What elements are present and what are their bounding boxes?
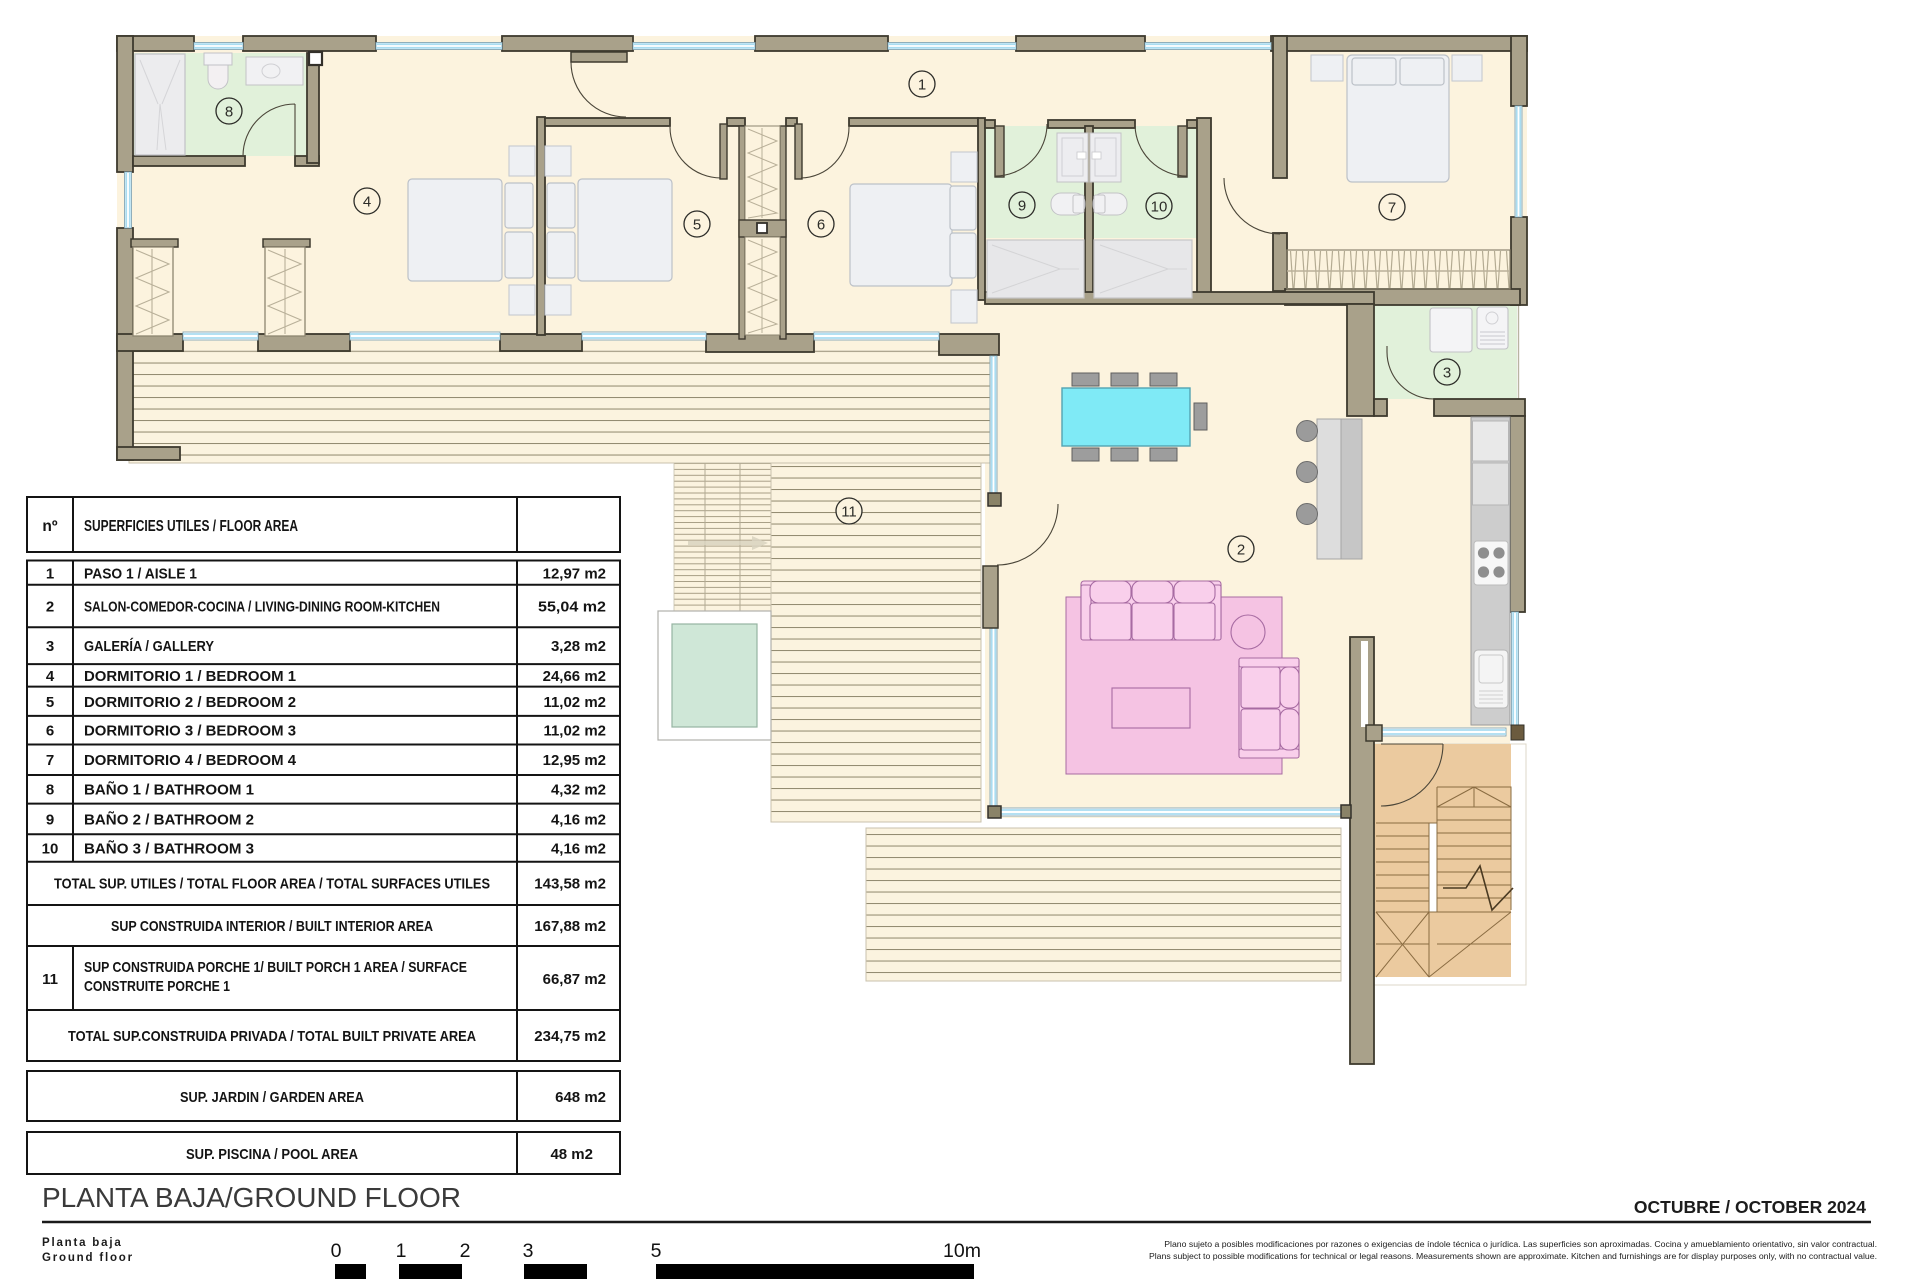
svg-text:4: 4: [363, 194, 371, 211]
svg-text:24,66 m2: 24,66 m2: [543, 668, 606, 685]
svg-text:SUP. PISCINA / POOL AREA: SUP. PISCINA / POOL AREA: [186, 1146, 358, 1163]
svg-text:11: 11: [42, 971, 58, 988]
svg-text:BAÑO 3 / BATHROOM 3: BAÑO 3 / BATHROOM 3: [84, 840, 254, 858]
svg-text:3,28 m2: 3,28 m2: [551, 638, 606, 655]
svg-text:BAÑO 1 / BATHROOM 1: BAÑO 1 / BATHROOM 1: [84, 781, 254, 799]
svg-text:SUP CONSTRUIDA INTERIOR / BUIL: SUP CONSTRUIDA INTERIOR / BUILT INTERIOR…: [111, 918, 433, 935]
svg-text:66,87 m2: 66,87 m2: [543, 971, 606, 988]
svg-text:4,16 m2: 4,16 m2: [551, 841, 606, 858]
svg-text:BAÑO 2 / BATHROOM 2: BAÑO 2 / BATHROOM 2: [84, 811, 254, 829]
svg-text:Plano sujeto a posibles modifi: Plano sujeto a posibles modificaciones p…: [1164, 1239, 1877, 1249]
svg-text:8: 8: [46, 782, 54, 799]
svg-text:7: 7: [46, 752, 54, 769]
svg-text:11: 11: [841, 504, 857, 521]
svg-text:SUP. JARDIN / GARDEN AREA: SUP. JARDIN / GARDEN AREA: [180, 1089, 364, 1106]
svg-text:6: 6: [46, 723, 54, 740]
svg-text:3: 3: [523, 1240, 534, 1262]
svg-text:7: 7: [1388, 200, 1396, 217]
svg-text:5: 5: [693, 217, 701, 234]
svg-text:2: 2: [1237, 542, 1245, 559]
svg-text:OCTUBRE / OCTOBER 2024: OCTUBRE / OCTOBER 2024: [1634, 1197, 1866, 1217]
svg-text:167,88 m2: 167,88 m2: [534, 918, 606, 935]
svg-text:nº: nº: [42, 518, 57, 535]
svg-text:9: 9: [1018, 198, 1026, 215]
svg-text:PASO 1 / AISLE 1: PASO 1 / AISLE 1: [84, 566, 197, 583]
svg-text:3: 3: [46, 638, 54, 655]
svg-text:Plans subject to possible modi: Plans subject to possible modifications …: [1149, 1251, 1877, 1261]
svg-text:12,97 m2: 12,97 m2: [543, 566, 606, 583]
svg-text:10: 10: [42, 841, 59, 858]
svg-text:TOTAL SUP.CONSTRUIDA PRIVADA /: TOTAL SUP.CONSTRUIDA PRIVADA / TOTAL BUI…: [68, 1028, 476, 1045]
svg-text:4,16 m2: 4,16 m2: [551, 812, 606, 829]
svg-text:11,02 m2: 11,02 m2: [543, 723, 606, 740]
svg-text:11,02 m2: 11,02 m2: [543, 694, 606, 711]
svg-text:6: 6: [817, 217, 825, 234]
svg-text:55,04 m2: 55,04 m2: [538, 599, 606, 616]
svg-text:DORMITORIO 2 / BEDROOM 2: DORMITORIO 2 / BEDROOM 2: [84, 694, 296, 711]
svg-text:2: 2: [460, 1240, 471, 1262]
svg-text:TOTAL SUP. UTILES / TOTAL FLOO: TOTAL SUP. UTILES / TOTAL FLOOR AREA / T…: [54, 876, 490, 893]
svg-text:DORMITORIO 1 / BEDROOM 1: DORMITORIO 1 / BEDROOM 1: [84, 668, 296, 685]
svg-text:Ground floor: Ground floor: [42, 1252, 134, 1264]
svg-text:GALERÍA / GALLERY: GALERÍA / GALLERY: [84, 638, 214, 655]
svg-text:234,75 m2: 234,75 m2: [534, 1028, 606, 1045]
svg-text:5: 5: [651, 1240, 662, 1262]
svg-text:4: 4: [46, 668, 55, 685]
svg-text:4,32 m2: 4,32 m2: [551, 782, 606, 799]
svg-text:PLANTA BAJA/GROUND FLOOR: PLANTA BAJA/GROUND FLOOR: [42, 1182, 461, 1213]
svg-text:5: 5: [46, 694, 54, 711]
svg-text:10m: 10m: [943, 1240, 981, 1262]
svg-text:648 m2: 648 m2: [555, 1089, 606, 1106]
svg-text:DORMITORIO 3 / BEDROOM 3: DORMITORIO 3 / BEDROOM 3: [84, 723, 296, 740]
svg-text:1: 1: [46, 566, 54, 583]
svg-text:10: 10: [1151, 199, 1168, 216]
svg-text:3: 3: [1443, 365, 1451, 382]
svg-text:1: 1: [918, 77, 926, 94]
svg-text:2: 2: [46, 599, 54, 616]
svg-text:SALON-COMEDOR-COCINA / LIVING: SALON-COMEDOR-COCINA / LIVING-DINING ROO…: [84, 599, 440, 616]
svg-text:DORMITORIO 4 / BEDROOM 4: DORMITORIO 4 / BEDROOM 4: [84, 752, 297, 769]
svg-text:Planta baja: Planta baja: [42, 1237, 123, 1249]
svg-text:SUP CONSTRUIDA PORCHE 1/ BUILT: SUP CONSTRUIDA PORCHE 1/ BUILT PORCH 1 A…: [84, 959, 467, 976]
svg-text:12,95 m2: 12,95 m2: [543, 752, 606, 769]
svg-text:9: 9: [46, 812, 54, 829]
svg-text:0: 0: [331, 1240, 342, 1262]
svg-text:CONSTRUITE PORCHE 1: CONSTRUITE PORCHE 1: [84, 978, 230, 995]
svg-text:48 m2: 48 m2: [550, 1146, 593, 1163]
svg-text:143,58 m2: 143,58 m2: [534, 876, 606, 893]
svg-text:1: 1: [396, 1240, 407, 1262]
svg-text:SUPERFICIES UTILES / FLOOR ARE: SUPERFICIES UTILES / FLOOR AREA: [84, 518, 298, 535]
svg-text:8: 8: [225, 104, 233, 121]
